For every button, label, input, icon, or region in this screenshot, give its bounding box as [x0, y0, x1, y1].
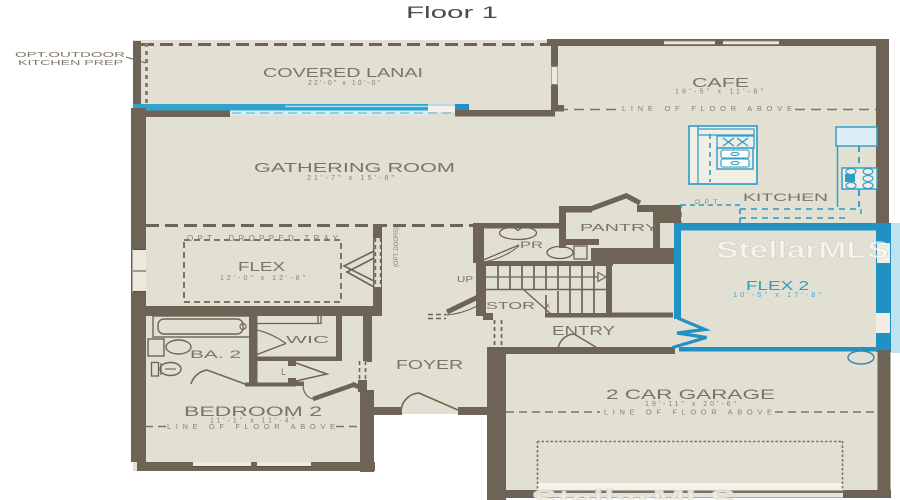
svg-text:FOYER: FOYER — [396, 358, 463, 372]
svg-text:OPT. DROPPED TRAY: OPT. DROPPED TRAY — [187, 234, 339, 243]
svg-text:BA. 2: BA. 2 — [190, 349, 241, 361]
svg-text:STOR: STOR — [486, 300, 536, 312]
svg-text:UP: UP — [457, 274, 473, 284]
svg-text:StellarMLS: StellarMLS — [531, 484, 736, 500]
svg-text:PR: PR — [520, 240, 543, 251]
svg-text:Floor 1: Floor 1 — [406, 4, 498, 22]
svg-text:WIC: WIC — [286, 335, 329, 346]
svg-text:x: x — [546, 301, 550, 310]
svg-text:StellarMLS: StellarMLS — [716, 237, 889, 264]
svg-text:KITCHEN PREP: KITCHEN PREP — [18, 58, 123, 67]
svg-text:KITCHEN: KITCHEN — [743, 192, 828, 204]
svg-text:FLEX: FLEX — [238, 260, 286, 274]
svg-text:(OPT. DOORS): (OPT. DOORS) — [394, 227, 400, 267]
svg-text:L: L — [281, 367, 286, 377]
svg-text:ENTRY: ENTRY — [552, 324, 616, 338]
svg-text:2 CAR GARAGE: 2 CAR GARAGE — [606, 386, 775, 402]
svg-text:PANTRY: PANTRY — [580, 222, 658, 234]
svg-text:GATHERING ROOM: GATHERING ROOM — [254, 160, 455, 175]
svg-text:COVERED LANAI: COVERED LANAI — [263, 66, 423, 80]
